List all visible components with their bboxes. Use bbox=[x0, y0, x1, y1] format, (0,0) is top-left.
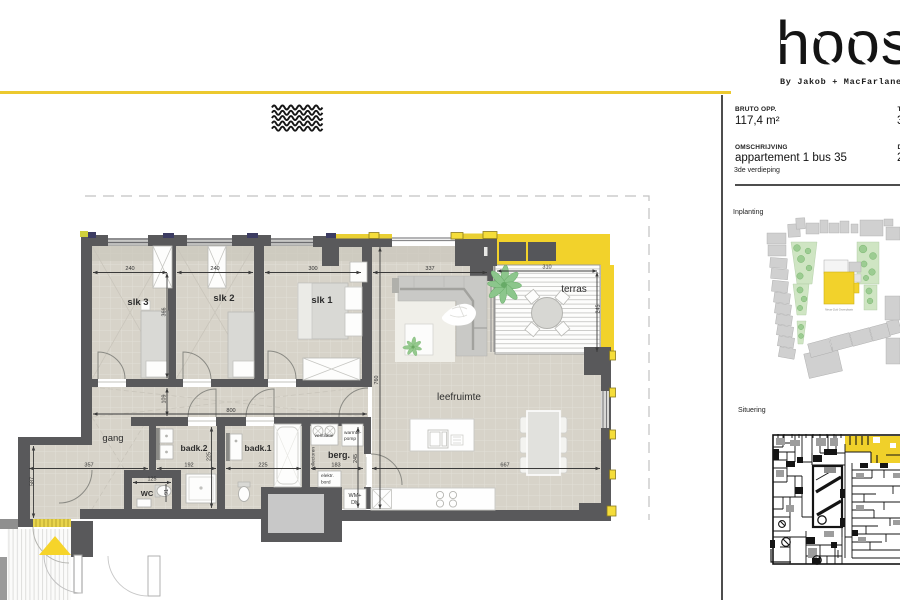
svg-text:310: 310 bbox=[542, 265, 551, 271]
svg-text:warmte-: warmte- bbox=[344, 430, 362, 436]
svg-text:357: 357 bbox=[84, 463, 93, 469]
svg-text:366: 366 bbox=[162, 308, 168, 317]
svg-text:WC: WC bbox=[141, 489, 154, 498]
svg-text:WM+: WM+ bbox=[349, 493, 362, 499]
svg-text:240: 240 bbox=[125, 266, 134, 272]
svg-text:leefruimte: leefruimte bbox=[437, 392, 481, 403]
svg-text:pomp: pomp bbox=[344, 437, 356, 442]
svg-text:587: 587 bbox=[30, 477, 36, 486]
svg-text:slk 1: slk 1 bbox=[311, 295, 333, 306]
svg-text:667: 667 bbox=[500, 463, 509, 469]
svg-text:slk 3: slk 3 bbox=[127, 297, 148, 308]
svg-text:collectoren: collectoren bbox=[311, 447, 317, 471]
svg-text:ventilatie: ventilatie bbox=[315, 433, 334, 439]
svg-text:By Jakob + MacFarlane: By Jakob + MacFarlane bbox=[780, 77, 900, 87]
svg-text:bord: bord bbox=[321, 480, 331, 486]
svg-text:225: 225 bbox=[207, 452, 213, 461]
svg-text:240: 240 bbox=[210, 266, 219, 272]
svg-text:300: 300 bbox=[308, 266, 317, 272]
svg-text:terras: terras bbox=[561, 284, 587, 295]
svg-text:800: 800 bbox=[226, 408, 235, 414]
svg-text:245: 245 bbox=[596, 305, 602, 314]
svg-text:125: 125 bbox=[148, 477, 157, 483]
svg-text:192: 192 bbox=[184, 463, 193, 469]
svg-text:91: 91 bbox=[164, 489, 170, 495]
svg-text:DK: DK bbox=[351, 500, 359, 506]
svg-text:183: 183 bbox=[331, 463, 340, 469]
svg-text:gang: gang bbox=[102, 433, 123, 444]
svg-text:225: 225 bbox=[258, 463, 267, 469]
svg-text:109: 109 bbox=[162, 395, 168, 404]
svg-text:Nieuw Zuid Groenplaats: Nieuw Zuid Groenplaats bbox=[825, 308, 854, 312]
svg-text:elektr.: elektr. bbox=[321, 473, 334, 479]
svg-text:slk 2: slk 2 bbox=[213, 293, 234, 304]
svg-text:245: 245 bbox=[353, 454, 359, 463]
svg-text:berg.: berg. bbox=[328, 450, 350, 460]
svg-text:760: 760 bbox=[374, 376, 380, 385]
svg-text:badk.2: badk.2 bbox=[181, 443, 208, 453]
svg-text:badk.1: badk.1 bbox=[245, 443, 272, 453]
svg-text:337: 337 bbox=[425, 266, 434, 272]
